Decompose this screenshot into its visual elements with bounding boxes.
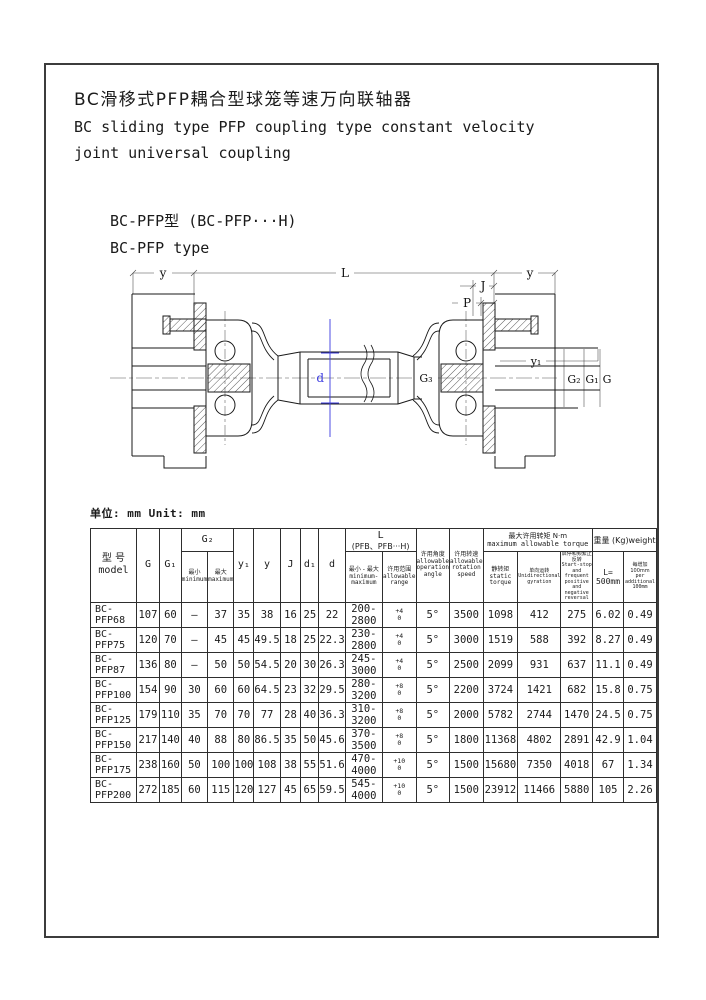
value-cell: 110	[159, 702, 181, 727]
header-d: d	[319, 529, 345, 603]
header-reversal: 启停和频繁正反转 Start-stop and frequent positiv…	[561, 552, 593, 603]
value-cell: 392	[561, 627, 593, 652]
value-cell: 50	[181, 752, 207, 777]
value-cell: 59.5	[319, 777, 345, 802]
value-cell: 280-3200	[345, 677, 382, 702]
value-cell: 88	[208, 727, 234, 752]
value-cell: 70	[208, 702, 234, 727]
value-cell: 637	[561, 652, 593, 677]
value-cell: 108	[254, 752, 280, 777]
header-d1: d₁	[301, 529, 319, 603]
table-row: BC-PFP75 120 70 — 45 45 49.5 18 25 22.3 …	[91, 627, 657, 652]
value-cell: 54.5	[254, 652, 280, 677]
header-G2: G₂	[181, 529, 234, 552]
value-cell: 3724	[483, 677, 518, 702]
value-cell: 23	[280, 677, 301, 702]
dim-label-y-left: y	[159, 266, 167, 280]
value-cell: 238	[136, 752, 159, 777]
model-cell: BC-PFP125	[91, 702, 137, 727]
value-cell: 5782	[483, 702, 518, 727]
header-L-range: 许用范围 allowable range	[383, 552, 417, 603]
value-cell: 2200	[450, 677, 484, 702]
value-cell: 5°	[416, 777, 450, 802]
value-cell: 200-2800	[345, 602, 382, 627]
dim-label-J: J	[479, 279, 486, 293]
value-cell: 470-4000	[345, 752, 382, 777]
header-model: 型 号 model	[91, 529, 137, 603]
page-title-en-line1: BC sliding type PFP coupling type consta…	[74, 114, 535, 140]
value-cell: 60	[159, 602, 181, 627]
value-cell: 588	[518, 627, 561, 652]
coupling-section	[132, 294, 600, 468]
value-cell: 11368	[483, 727, 518, 752]
value-cell: 70	[234, 702, 254, 727]
value-cell: 0.49	[624, 652, 657, 677]
value-cell: 1.04	[624, 727, 657, 752]
value-cell: 35	[234, 602, 254, 627]
value-cell: 0.49	[624, 627, 657, 652]
value-cell: 107	[136, 602, 159, 627]
table-row: BC-PFP68 107 60 — 37 35 38 16 25 22 200-…	[91, 602, 657, 627]
value-cell: 26.3	[319, 652, 345, 677]
value-cell: 3000	[450, 627, 484, 652]
value-cell: 45	[234, 627, 254, 652]
value-cell: 127	[254, 777, 280, 802]
value-cell: 5°	[416, 627, 450, 652]
value-cell: 86.5	[254, 727, 280, 752]
tolerance-cell: +100	[383, 752, 417, 777]
value-cell: 25	[301, 602, 319, 627]
value-cell: 35	[280, 727, 301, 752]
value-cell: 25	[301, 627, 319, 652]
value-cell: 1.34	[624, 752, 657, 777]
value-cell: 42.9	[593, 727, 624, 752]
value-cell: 36.3	[319, 702, 345, 727]
value-cell: 22.3	[319, 627, 345, 652]
value-cell: 5°	[416, 727, 450, 752]
value-cell: 15680	[483, 752, 518, 777]
header-L-minmax: 最小 - 最大 minimum-maximum	[345, 552, 382, 603]
value-cell: 37	[208, 602, 234, 627]
value-cell: 4018	[561, 752, 593, 777]
value-cell: 2000	[450, 702, 484, 727]
value-cell: 1421	[518, 677, 561, 702]
value-cell: 4802	[518, 727, 561, 752]
header-L-group: L (PFB、PFB···H)	[345, 529, 416, 552]
value-cell: 3500	[450, 602, 484, 627]
unit-note: 单位: mm Unit: mm	[90, 505, 206, 521]
value-cell: 5°	[416, 602, 450, 627]
catalog-page: { "page": { "title_zh": "BC滑移式PFP耦合型球笼等速…	[0, 0, 706, 1000]
model-type-en: BC-PFP type	[110, 235, 297, 262]
value-cell: 245-3000	[345, 652, 382, 677]
dim-label-G3: G₃	[419, 372, 432, 385]
value-cell: 65	[301, 777, 319, 802]
table-row: BC-PFP87 136 80 — 50 50 54.5 20 30 26.3 …	[91, 652, 657, 677]
tolerance-cell: +80	[383, 702, 417, 727]
value-cell: —	[181, 602, 207, 627]
model-cell: BC-PFP75	[91, 627, 137, 652]
table-row: BC-PFP200 272 185 60 115 120 127 45 65 5…	[91, 777, 657, 802]
value-cell: —	[181, 652, 207, 677]
dim-label-L: L	[341, 266, 349, 280]
value-cell: 45	[208, 627, 234, 652]
value-cell: 28	[280, 702, 301, 727]
dim-label-P: P	[463, 296, 471, 310]
header-weight-500: L= 500mm	[593, 552, 624, 603]
value-cell: 545-4000	[345, 777, 382, 802]
value-cell: 60	[234, 677, 254, 702]
header-G2-min: 最小 minimum	[181, 552, 207, 603]
value-cell: 1519	[483, 627, 518, 652]
subtitle-block: BC-PFP型 (BC-PFP···H) BC-PFP type	[110, 208, 297, 262]
tolerance-cell: +40	[383, 602, 417, 627]
value-cell: 136	[136, 652, 159, 677]
value-cell: 35	[181, 702, 207, 727]
value-cell: 217	[136, 727, 159, 752]
value-cell: 30	[301, 652, 319, 677]
value-cell: 45	[280, 777, 301, 802]
value-cell: 80	[159, 652, 181, 677]
header-unidirectional: 单向运转 Unidirectional gyration	[518, 552, 561, 603]
value-cell: 0.49	[624, 602, 657, 627]
value-cell: 67	[593, 752, 624, 777]
model-cell: BC-PFP68	[91, 602, 137, 627]
value-cell: 29.5	[319, 677, 345, 702]
header-y1: y₁	[234, 529, 254, 603]
value-cell: 24.5	[593, 702, 624, 727]
header-row-1: 型 号 model G G₁ G₂ y₁ y J d₁ d L (PFB、PFB…	[91, 529, 657, 552]
tolerance-cell: +100	[383, 777, 417, 802]
value-cell: 40	[181, 727, 207, 752]
value-cell: 1500	[450, 752, 484, 777]
value-cell: 6.02	[593, 602, 624, 627]
value-cell: 0.75	[624, 677, 657, 702]
value-cell: 2099	[483, 652, 518, 677]
table-row: BC-PFP100 154 90 30 60 60 64.5 23 32 29.…	[91, 677, 657, 702]
value-cell: 2.26	[624, 777, 657, 802]
value-cell: 80	[234, 727, 254, 752]
value-cell: 7350	[518, 752, 561, 777]
value-cell: 310-3200	[345, 702, 382, 727]
value-cell: 412	[518, 602, 561, 627]
model-cell: BC-PFP200	[91, 777, 137, 802]
header-speed: 许用转速 allowable rotation speed	[450, 529, 484, 603]
header-static-torque: 静转矩 static torque	[483, 552, 518, 603]
header-torque-group: 最大许用转矩 N·m maximum allowable torque	[483, 529, 592, 552]
value-cell: 77	[254, 702, 280, 727]
table-row: BC-PFP125 179 110 35 70 70 77 28 40 36.3…	[91, 702, 657, 727]
value-cell: 30	[181, 677, 207, 702]
value-cell: 15.8	[593, 677, 624, 702]
header-angle: 许用角度 allowable operation angle	[416, 529, 450, 603]
value-cell: 5°	[416, 752, 450, 777]
page-border: BC滑移式PFP耦合型球笼等速万向联轴器 BC sliding type PFP…	[44, 63, 659, 938]
header-weight-group: 重量 (Kg)weight	[593, 529, 657, 552]
value-cell: 140	[159, 727, 181, 752]
value-cell: 49.5	[254, 627, 280, 652]
tolerance-cell: +40	[383, 627, 417, 652]
value-cell: 5°	[416, 652, 450, 677]
dim-label-G: G	[603, 373, 612, 386]
dim-label-y-right: y	[526, 266, 534, 280]
value-cell: 5880	[561, 777, 593, 802]
value-cell: 1098	[483, 602, 518, 627]
technical-drawing: y L y J P y₁ G₃ G₂ G₁ G d	[102, 263, 612, 488]
model-cell: BC-PFP87	[91, 652, 137, 677]
value-cell: 38	[280, 752, 301, 777]
value-cell: 179	[136, 702, 159, 727]
value-cell: 16	[280, 602, 301, 627]
value-cell: 20	[280, 652, 301, 677]
value-cell: 230-2800	[345, 627, 382, 652]
value-cell: 51.6	[319, 752, 345, 777]
value-cell: 0.75	[624, 702, 657, 727]
value-cell: 370-3500	[345, 727, 382, 752]
value-cell: 64.5	[254, 677, 280, 702]
value-cell: 154	[136, 677, 159, 702]
table-row: BC-PFP175 238 160 50 100 100 108 38 55 5…	[91, 752, 657, 777]
value-cell: 90	[159, 677, 181, 702]
table-row: BC-PFP150 217 140 40 88 80 86.5 35 50 45…	[91, 727, 657, 752]
value-cell: 32	[301, 677, 319, 702]
value-cell: 100	[234, 752, 254, 777]
model-cell: BC-PFP100	[91, 677, 137, 702]
dim-label-d: d	[316, 371, 324, 385]
header-G2-max: 最大 maximum	[208, 552, 234, 603]
tolerance-cell: +80	[383, 727, 417, 752]
value-cell: 8.27	[593, 627, 624, 652]
tolerance-cell: +80	[383, 677, 417, 702]
value-cell: 60	[208, 677, 234, 702]
value-cell: 931	[518, 652, 561, 677]
value-cell: 1470	[561, 702, 593, 727]
value-cell: 23912	[483, 777, 518, 802]
value-cell: 272	[136, 777, 159, 802]
title-block: BC滑移式PFP耦合型球笼等速万向联轴器 BC sliding type PFP…	[74, 85, 535, 166]
model-cell: BC-PFP175	[91, 752, 137, 777]
value-cell: 11.1	[593, 652, 624, 677]
value-cell: 18	[280, 627, 301, 652]
page-title-en-line2: joint universal coupling	[74, 140, 535, 166]
value-cell: 11466	[518, 777, 561, 802]
value-cell: 105	[593, 777, 624, 802]
value-cell: 275	[561, 602, 593, 627]
value-cell: 22	[319, 602, 345, 627]
value-cell: 120	[136, 627, 159, 652]
value-cell: 40	[301, 702, 319, 727]
value-cell: 38	[254, 602, 280, 627]
page-title-zh: BC滑移式PFP耦合型球笼等速万向联轴器	[74, 85, 535, 110]
dim-label-y1: y₁	[530, 355, 542, 368]
value-cell: 682	[561, 677, 593, 702]
dim-label-G2: G₂	[567, 373, 580, 386]
value-cell: 2500	[450, 652, 484, 677]
value-cell: 5°	[416, 702, 450, 727]
value-cell: 45.6	[319, 727, 345, 752]
value-cell: 160	[159, 752, 181, 777]
header-weight-per: 每增加 100mm per additional 100mm	[624, 552, 657, 603]
value-cell: 120	[234, 777, 254, 802]
value-cell: 50	[234, 652, 254, 677]
value-cell: 5°	[416, 677, 450, 702]
header-J: J	[280, 529, 301, 603]
value-cell: 2744	[518, 702, 561, 727]
header-G1: G₁	[159, 529, 181, 603]
value-cell: 70	[159, 627, 181, 652]
value-cell: 1500	[450, 777, 484, 802]
value-cell: 50	[301, 727, 319, 752]
value-cell: 100	[208, 752, 234, 777]
value-cell: —	[181, 627, 207, 652]
value-cell: 1800	[450, 727, 484, 752]
spec-table: 型 号 model G G₁ G₂ y₁ y J d₁ d L (PFB、PFB…	[90, 528, 657, 803]
value-cell: 55	[301, 752, 319, 777]
value-cell: 185	[159, 777, 181, 802]
value-cell: 2891	[561, 727, 593, 752]
model-cell: BC-PFP150	[91, 727, 137, 752]
tolerance-cell: +40	[383, 652, 417, 677]
value-cell: 60	[181, 777, 207, 802]
header-y: y	[254, 529, 280, 603]
dim-label-G1: G₁	[585, 373, 598, 386]
value-cell: 50	[208, 652, 234, 677]
value-cell: 115	[208, 777, 234, 802]
model-type-zh: BC-PFP型 (BC-PFP···H)	[110, 208, 297, 235]
header-G: G	[136, 529, 159, 603]
